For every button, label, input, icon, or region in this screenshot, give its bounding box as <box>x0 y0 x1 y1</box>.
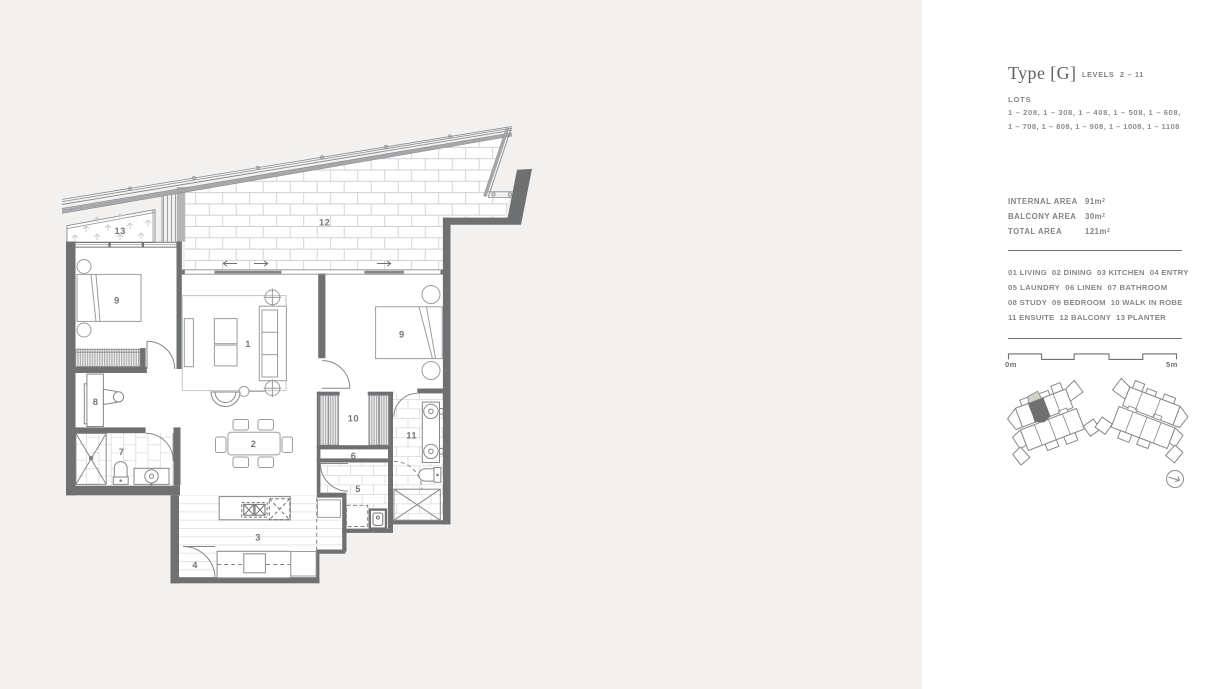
svg-text:13: 13 <box>115 226 126 236</box>
svg-text:3: 3 <box>255 533 261 543</box>
svg-text:9: 9 <box>114 296 120 306</box>
svg-text:10: 10 <box>348 413 359 423</box>
svg-text:2: 2 <box>251 439 257 449</box>
svg-text:1: 1 <box>245 339 251 349</box>
svg-text:12: 12 <box>319 217 330 227</box>
svg-text:8: 8 <box>93 397 99 407</box>
svg-text:6: 6 <box>351 451 357 461</box>
svg-text:4: 4 <box>192 560 198 570</box>
svg-text:9: 9 <box>399 329 405 339</box>
svg-text:11: 11 <box>406 431 417 441</box>
svg-text:5: 5 <box>355 484 361 494</box>
svg-text:7: 7 <box>119 447 125 457</box>
